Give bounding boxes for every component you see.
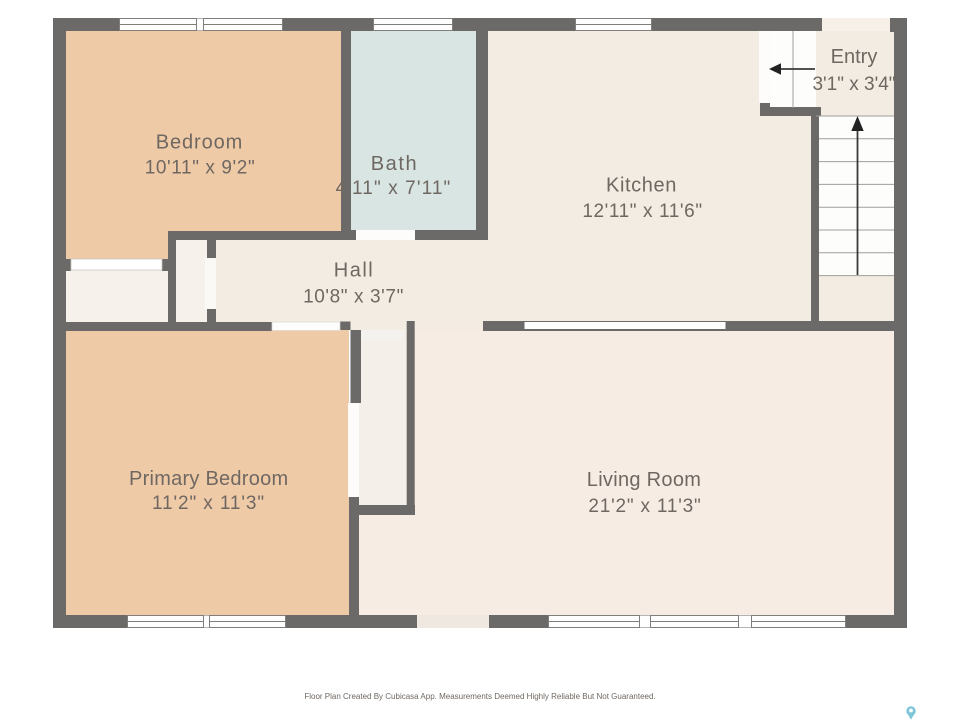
svg-text:Bath: Bath [371, 153, 419, 175]
svg-text:Floor Plan Created By Cubicasa: Floor Plan Created By Cubicasa App. Meas… [304, 692, 655, 701]
svg-text:10'8" x 3'7": 10'8" x 3'7" [303, 287, 404, 308]
svg-text:4'11" x 7'11": 4'11" x 7'11" [336, 178, 452, 199]
svg-text:3'1" x 3'4": 3'1" x 3'4" [812, 74, 895, 95]
svg-text:10'11" x 9'2": 10'11" x 9'2" [145, 158, 256, 179]
svg-text:12'11" x 11'6": 12'11" x 11'6" [582, 201, 702, 222]
svg-text:Entry: Entry [831, 46, 878, 68]
svg-text:Living Room: Living Room [587, 469, 701, 491]
svg-text:21'2" x 11'3": 21'2" x 11'3" [588, 496, 701, 517]
svg-text:Kitchen: Kitchen [606, 175, 677, 197]
svg-text:11'2" x 11'3": 11'2" x 11'3" [152, 493, 265, 514]
svg-text:Hall: Hall [334, 260, 374, 282]
svg-text:Bedroom: Bedroom [156, 132, 243, 154]
svg-text:Primary Bedroom: Primary Bedroom [129, 468, 288, 490]
